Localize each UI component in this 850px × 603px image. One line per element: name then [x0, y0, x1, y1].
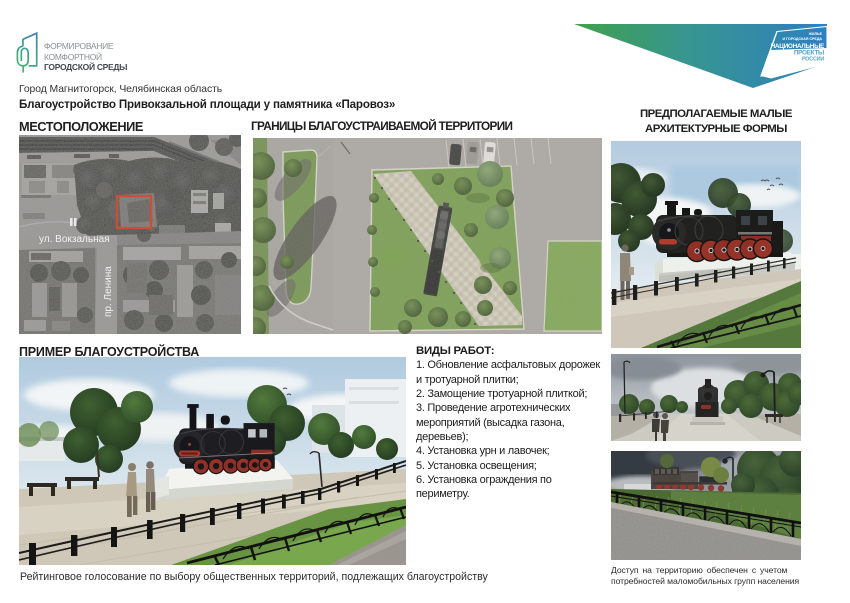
svg-text:И ГОРОДСКАЯ СРЕДА: И ГОРОДСКАЯ СРЕДА — [782, 37, 822, 41]
svg-text:пр. Ленина: пр. Ленина — [103, 266, 114, 317]
svg-text:ПРОЕКТЫ: ПРОЕКТЫ — [794, 50, 824, 57]
svg-text:РОССИИ: РОССИИ — [802, 57, 824, 63]
svg-text:ул. Вокзальная: ул. Вокзальная — [39, 234, 110, 245]
svg-text:ЖИЛЬЕ: ЖИЛЬЕ — [808, 32, 823, 36]
